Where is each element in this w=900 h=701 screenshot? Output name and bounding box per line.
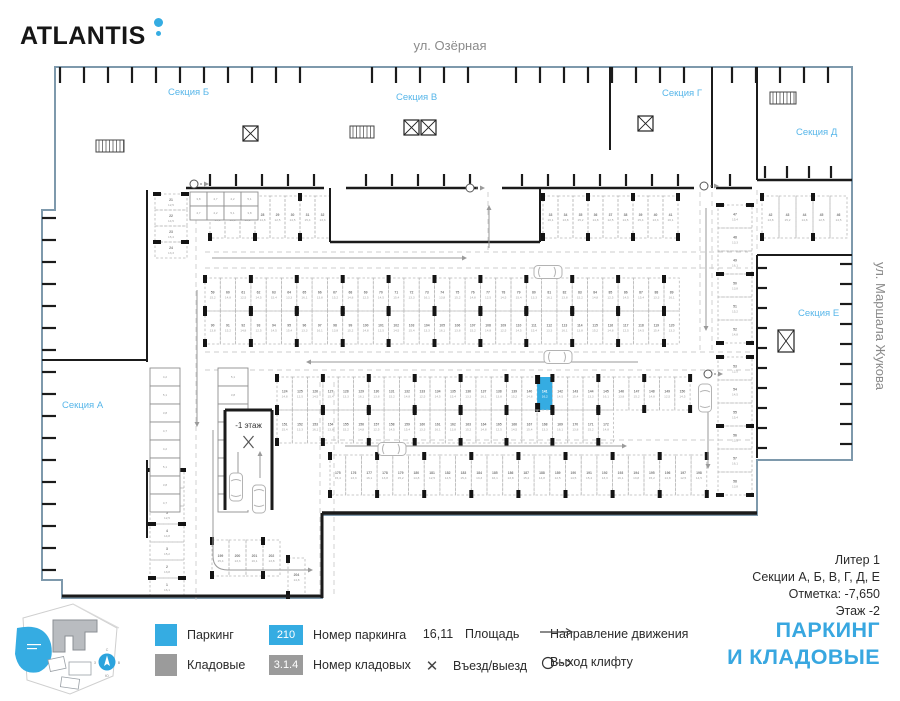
svg-text:3: 3 bbox=[166, 547, 168, 551]
svg-text:14,5: 14,5 bbox=[435, 395, 441, 399]
svg-text:13,8: 13,8 bbox=[732, 287, 738, 291]
site-minimap: СВЮЗ bbox=[15, 604, 121, 694]
parking-stall-selected[interactable]: 14116,2 bbox=[535, 375, 552, 412]
svg-text:34: 34 bbox=[564, 213, 568, 217]
svg-text:15,4: 15,4 bbox=[638, 296, 644, 300]
svg-text:64: 64 bbox=[287, 291, 291, 295]
svg-text:153: 153 bbox=[312, 423, 318, 427]
svg-text:15,2: 15,2 bbox=[225, 329, 231, 333]
svg-text:14,8: 14,8 bbox=[481, 428, 487, 432]
svg-text:61: 61 bbox=[241, 291, 245, 295]
svg-text:159: 159 bbox=[404, 423, 410, 427]
svg-text:109: 109 bbox=[501, 324, 507, 328]
svg-text:36: 36 bbox=[594, 213, 598, 217]
svg-text:111: 111 bbox=[531, 324, 536, 328]
svg-text:101: 101 bbox=[378, 324, 384, 328]
svg-text:15,2: 15,2 bbox=[470, 329, 476, 333]
street-label-right: ул. Маршала Жукова bbox=[873, 262, 888, 390]
svg-text:14,8: 14,8 bbox=[592, 218, 598, 222]
svg-text:4: 4 bbox=[166, 529, 168, 533]
svg-text:3,8: 3,8 bbox=[196, 197, 201, 201]
svg-text:166: 166 bbox=[511, 423, 517, 427]
svg-text:181: 181 bbox=[429, 471, 435, 475]
svg-text:169: 169 bbox=[557, 423, 563, 427]
svg-text:112: 112 bbox=[547, 324, 553, 328]
svg-text:170: 170 bbox=[573, 423, 579, 427]
svg-text:15,2: 15,2 bbox=[389, 395, 395, 399]
svg-text:15,2: 15,2 bbox=[164, 552, 170, 556]
svg-text:28: 28 bbox=[261, 213, 265, 217]
svg-text:127: 127 bbox=[328, 390, 334, 394]
svg-text:167: 167 bbox=[527, 423, 533, 427]
svg-text:46: 46 bbox=[837, 213, 841, 217]
svg-text:185: 185 bbox=[492, 471, 498, 475]
svg-text:182: 182 bbox=[445, 471, 451, 475]
svg-text:16,1: 16,1 bbox=[557, 428, 563, 432]
svg-text:14,8: 14,8 bbox=[282, 395, 288, 399]
svg-text:16,1: 16,1 bbox=[366, 476, 372, 480]
svg-text:161: 161 bbox=[435, 423, 441, 427]
svg-text:120: 120 bbox=[669, 324, 675, 328]
svg-text:14,5: 14,5 bbox=[732, 393, 738, 397]
svg-text:107: 107 bbox=[470, 324, 476, 328]
svg-text:15,4: 15,4 bbox=[732, 218, 738, 222]
svg-text:179: 179 bbox=[398, 471, 404, 475]
svg-text:15,4: 15,4 bbox=[286, 329, 292, 333]
storage-cell[interactable]: 4,7 bbox=[190, 206, 207, 220]
svg-text:16,2: 16,2 bbox=[542, 395, 548, 399]
svg-text:14,8: 14,8 bbox=[732, 333, 738, 337]
stairs-icon bbox=[350, 126, 374, 138]
section-label: Секция Е bbox=[798, 308, 839, 319]
section-label: Секция Б bbox=[168, 87, 209, 98]
svg-text:67: 67 bbox=[333, 291, 337, 295]
legend-item-entry: ✕ Въезд/выезд bbox=[421, 657, 527, 675]
svg-text:15,2: 15,2 bbox=[577, 296, 583, 300]
svg-text:12,5: 12,5 bbox=[607, 296, 613, 300]
svg-text:118: 118 bbox=[638, 324, 644, 328]
svg-text:43: 43 bbox=[786, 213, 790, 217]
svg-text:13,8: 13,8 bbox=[633, 476, 639, 480]
storage-cell[interactable]: 5,1 bbox=[218, 368, 248, 386]
svg-text:Ю: Ю bbox=[105, 674, 109, 678]
svg-text:13,3: 13,3 bbox=[732, 439, 738, 443]
storage-cell[interactable]: 4,7 bbox=[150, 494, 180, 512]
car-icon bbox=[378, 443, 406, 456]
svg-text:132: 132 bbox=[404, 390, 410, 394]
svg-text:16,1: 16,1 bbox=[312, 428, 318, 432]
svg-text:13,3: 13,3 bbox=[424, 329, 430, 333]
svg-text:96: 96 bbox=[303, 324, 307, 328]
svg-text:44: 44 bbox=[803, 213, 807, 217]
svg-text:201: 201 bbox=[252, 554, 258, 558]
storage-cell[interactable]: 5,1 bbox=[224, 206, 241, 220]
svg-text:13,3: 13,3 bbox=[419, 428, 425, 432]
legend-item-storage: Кладовые bbox=[155, 654, 245, 676]
svg-text:176: 176 bbox=[351, 471, 357, 475]
svg-text:148: 148 bbox=[649, 390, 655, 394]
svg-text:12,5: 12,5 bbox=[429, 476, 435, 480]
svg-text:16,1: 16,1 bbox=[481, 395, 487, 399]
svg-text:13,3: 13,3 bbox=[588, 395, 594, 399]
svg-text:38: 38 bbox=[624, 213, 628, 217]
svg-text:16,1: 16,1 bbox=[667, 218, 673, 222]
svg-text:15,4: 15,4 bbox=[271, 296, 277, 300]
storage-label: Кладовые bbox=[187, 658, 245, 672]
elevator-shaft-icon bbox=[421, 120, 436, 135]
svg-text:75: 75 bbox=[456, 291, 460, 295]
storage-cell[interactable]: 3,8 bbox=[150, 404, 180, 422]
svg-text:5,1: 5,1 bbox=[163, 393, 168, 397]
section-label: Секция В bbox=[396, 92, 437, 103]
storage-cell[interactable]: 3,8 bbox=[241, 206, 258, 220]
svg-text:204: 204 bbox=[294, 573, 300, 577]
svg-text:12,5: 12,5 bbox=[732, 370, 738, 374]
svg-text:14,8: 14,8 bbox=[603, 428, 609, 432]
svg-text:4,2: 4,2 bbox=[213, 211, 218, 215]
storage-cell[interactable]: 5,1 bbox=[241, 192, 258, 206]
svg-text:3,8: 3,8 bbox=[163, 483, 168, 487]
storage-cell[interactable]: 3,8 bbox=[190, 192, 207, 206]
svg-text:152: 152 bbox=[297, 423, 303, 427]
svg-text:160: 160 bbox=[420, 423, 426, 427]
svg-text:106: 106 bbox=[455, 324, 461, 328]
svg-text:13,3: 13,3 bbox=[286, 296, 292, 300]
svg-text:22: 22 bbox=[169, 214, 173, 218]
svg-text:188: 188 bbox=[539, 471, 545, 475]
svg-text:15,4: 15,4 bbox=[335, 476, 341, 480]
svg-text:53: 53 bbox=[733, 365, 737, 369]
svg-text:190: 190 bbox=[571, 471, 577, 475]
svg-text:136: 136 bbox=[465, 390, 471, 394]
svg-text:150: 150 bbox=[680, 390, 686, 394]
svg-text:13,8: 13,8 bbox=[382, 476, 388, 480]
svg-text:145: 145 bbox=[603, 390, 609, 394]
svg-text:47: 47 bbox=[733, 213, 737, 217]
svg-text:16,1: 16,1 bbox=[603, 395, 609, 399]
svg-text:62: 62 bbox=[257, 291, 261, 295]
storage-cell[interactable]: 4,2 bbox=[207, 206, 224, 220]
svg-text:98: 98 bbox=[333, 324, 337, 328]
elevator-shaft-icon bbox=[778, 330, 794, 352]
svg-text:14,5: 14,5 bbox=[696, 476, 702, 480]
svg-text:12,5: 12,5 bbox=[623, 329, 629, 333]
elevator-shaft-icon bbox=[404, 120, 419, 135]
svg-text:14,5: 14,5 bbox=[393, 329, 399, 333]
svg-text:-1 этаж: -1 этаж bbox=[235, 421, 262, 430]
svg-text:14,5: 14,5 bbox=[679, 395, 685, 399]
svg-text:4,7: 4,7 bbox=[213, 197, 218, 201]
svg-text:158: 158 bbox=[389, 423, 395, 427]
parking-label: Паркинг bbox=[187, 628, 234, 642]
svg-text:4,7: 4,7 bbox=[163, 501, 168, 505]
svg-text:70: 70 bbox=[379, 291, 383, 295]
svg-text:3,8: 3,8 bbox=[247, 211, 252, 215]
svg-text:15,4: 15,4 bbox=[572, 395, 578, 399]
svg-text:155: 155 bbox=[343, 423, 349, 427]
svg-text:29: 29 bbox=[276, 213, 280, 217]
svg-text:15,2: 15,2 bbox=[343, 428, 349, 432]
svg-text:13,3: 13,3 bbox=[465, 395, 471, 399]
svg-text:51: 51 bbox=[733, 305, 737, 309]
svg-text:14,5: 14,5 bbox=[312, 395, 318, 399]
svg-text:15,2: 15,2 bbox=[732, 310, 738, 314]
svg-text:15,2: 15,2 bbox=[347, 329, 353, 333]
svg-text:151: 151 bbox=[282, 423, 288, 427]
svg-text:13,3: 13,3 bbox=[542, 428, 548, 432]
svg-text:15,4: 15,4 bbox=[526, 428, 532, 432]
svg-text:14,5: 14,5 bbox=[378, 296, 384, 300]
svg-text:12,5: 12,5 bbox=[168, 203, 174, 207]
svg-text:119: 119 bbox=[654, 324, 660, 328]
svg-text:14,5: 14,5 bbox=[516, 329, 522, 333]
svg-text:131: 131 bbox=[389, 390, 395, 394]
svg-text:168: 168 bbox=[542, 423, 548, 427]
svg-text:15,4: 15,4 bbox=[282, 428, 288, 432]
svg-text:5,1: 5,1 bbox=[247, 197, 252, 201]
svg-text:15,4: 15,4 bbox=[732, 416, 738, 420]
svg-text:81: 81 bbox=[547, 291, 551, 295]
svg-text:196: 196 bbox=[665, 471, 671, 475]
svg-text:93: 93 bbox=[257, 324, 261, 328]
svg-text:105: 105 bbox=[439, 324, 445, 328]
svg-text:13,3: 13,3 bbox=[301, 329, 307, 333]
svg-text:13,8: 13,8 bbox=[328, 428, 334, 432]
svg-text:15,4: 15,4 bbox=[653, 329, 659, 333]
svg-text:16,1: 16,1 bbox=[547, 218, 553, 222]
storage-cell[interactable]: 4,7 bbox=[207, 192, 224, 206]
svg-text:15,4: 15,4 bbox=[404, 428, 410, 432]
svg-text:13,3: 13,3 bbox=[602, 476, 608, 480]
svg-text:16,1: 16,1 bbox=[546, 296, 552, 300]
svg-text:86: 86 bbox=[624, 291, 628, 295]
section-label: Секция А bbox=[62, 400, 104, 411]
svg-text:65: 65 bbox=[303, 291, 307, 295]
svg-text:94: 94 bbox=[272, 324, 276, 328]
legend-item-area: 16,11 Площадь bbox=[421, 627, 519, 641]
svg-text:100: 100 bbox=[363, 324, 369, 328]
svg-text:191: 191 bbox=[586, 471, 592, 475]
svg-text:5,1: 5,1 bbox=[231, 375, 236, 379]
svg-text:15,4: 15,4 bbox=[168, 235, 174, 239]
svg-text:195: 195 bbox=[649, 471, 655, 475]
svg-text:3,8: 3,8 bbox=[163, 411, 168, 415]
svg-text:16,1: 16,1 bbox=[251, 559, 257, 563]
storage-cell[interactable]: 4,2 bbox=[224, 192, 241, 206]
legend-item-parking: Паркинг bbox=[155, 624, 234, 646]
svg-text:16,1: 16,1 bbox=[301, 296, 307, 300]
svg-text:16,1: 16,1 bbox=[492, 476, 498, 480]
svg-text:12,5: 12,5 bbox=[555, 476, 561, 480]
svg-text:147: 147 bbox=[634, 390, 640, 394]
brand-dot-large-icon bbox=[154, 18, 163, 27]
svg-text:15,4: 15,4 bbox=[304, 218, 310, 222]
svg-text:13,8: 13,8 bbox=[439, 296, 445, 300]
svg-text:183: 183 bbox=[461, 471, 467, 475]
svg-text:В: В bbox=[118, 661, 121, 665]
svg-text:14,8: 14,8 bbox=[485, 329, 491, 333]
storage-number-swatch-icon: 3.1.4 bbox=[269, 655, 303, 675]
area-label: Площадь bbox=[465, 627, 519, 641]
svg-text:14,5: 14,5 bbox=[835, 218, 841, 222]
svg-text:49: 49 bbox=[733, 259, 737, 263]
svg-text:15,4: 15,4 bbox=[586, 476, 592, 480]
section-label: Секция Г bbox=[662, 88, 702, 99]
svg-text:50: 50 bbox=[733, 282, 737, 286]
svg-text:16,1: 16,1 bbox=[617, 476, 623, 480]
svg-text:13,8: 13,8 bbox=[577, 329, 583, 333]
svg-text:12,5: 12,5 bbox=[164, 516, 170, 520]
storage-cell[interactable]: 4,7 bbox=[150, 422, 180, 440]
svg-text:15,4: 15,4 bbox=[460, 476, 466, 480]
svg-text:16,1: 16,1 bbox=[435, 428, 441, 432]
svg-text:13,8: 13,8 bbox=[618, 395, 624, 399]
svg-text:15,2: 15,2 bbox=[511, 395, 517, 399]
svg-text:12,5: 12,5 bbox=[419, 395, 425, 399]
svg-text:5,1: 5,1 bbox=[230, 211, 235, 215]
svg-text:177: 177 bbox=[366, 471, 372, 475]
parking-number-swatch-icon: 210 bbox=[269, 625, 303, 645]
svg-text:13,3: 13,3 bbox=[343, 395, 349, 399]
storage-cell[interactable]: 3,8 bbox=[218, 386, 248, 404]
elevator-shaft-icon bbox=[243, 126, 258, 141]
svg-text:66: 66 bbox=[318, 291, 322, 295]
svg-text:134: 134 bbox=[435, 390, 441, 394]
svg-text:104: 104 bbox=[424, 324, 430, 328]
storage-cell[interactable]: 3,8 bbox=[150, 476, 180, 494]
svg-text:192: 192 bbox=[602, 471, 608, 475]
svg-text:15,2: 15,2 bbox=[523, 476, 529, 480]
svg-text:200: 200 bbox=[235, 554, 241, 558]
svg-text:110: 110 bbox=[516, 324, 522, 328]
svg-text:15,4: 15,4 bbox=[217, 559, 223, 563]
svg-text:91: 91 bbox=[226, 324, 230, 328]
car-icon bbox=[544, 351, 572, 364]
legend-item-direction: Направление движения bbox=[540, 627, 688, 641]
storage-cell[interactable]: 4,2 bbox=[150, 440, 180, 458]
elevator-shaft-icon bbox=[638, 116, 653, 131]
svg-text:141: 141 bbox=[542, 390, 548, 394]
svg-text:197: 197 bbox=[680, 471, 686, 475]
svg-text:13,8: 13,8 bbox=[268, 559, 274, 563]
svg-text:15,2: 15,2 bbox=[332, 296, 338, 300]
svg-text:58: 58 bbox=[733, 480, 737, 484]
svg-text:97: 97 bbox=[318, 324, 322, 328]
svg-text:137: 137 bbox=[481, 390, 487, 394]
svg-text:13,8: 13,8 bbox=[210, 329, 216, 333]
svg-text:13,8: 13,8 bbox=[508, 476, 514, 480]
svg-text:198: 198 bbox=[696, 471, 702, 475]
svg-text:1: 1 bbox=[166, 583, 168, 587]
svg-text:146: 146 bbox=[618, 390, 624, 394]
legend: Паркинг Кладовые 210 Номер паркинга 3.1.… bbox=[155, 618, 715, 682]
svg-text:95: 95 bbox=[287, 324, 291, 328]
svg-text:80: 80 bbox=[532, 291, 536, 295]
svg-text:157: 157 bbox=[374, 423, 380, 427]
svg-text:13,8: 13,8 bbox=[562, 296, 568, 300]
svg-text:14,5: 14,5 bbox=[570, 476, 576, 480]
svg-text:15,2: 15,2 bbox=[649, 476, 655, 480]
page-title: ПАРКИНГ И КЛАДОВЫЕ bbox=[727, 617, 880, 671]
svg-text:13,3: 13,3 bbox=[732, 241, 738, 245]
svg-text:129: 129 bbox=[358, 390, 364, 394]
svg-text:68: 68 bbox=[348, 291, 352, 295]
car-icon bbox=[230, 473, 243, 501]
svg-text:С: С bbox=[106, 648, 109, 652]
svg-text:16,1: 16,1 bbox=[732, 264, 738, 268]
svg-text:12,5: 12,5 bbox=[256, 329, 262, 333]
svg-text:149: 149 bbox=[664, 390, 670, 394]
svg-text:102: 102 bbox=[393, 324, 399, 328]
svg-text:15,4: 15,4 bbox=[516, 296, 522, 300]
svg-text:12,5: 12,5 bbox=[664, 395, 670, 399]
svg-text:13,8: 13,8 bbox=[454, 329, 460, 333]
storage-cell[interactable]: 5,1 bbox=[150, 458, 180, 476]
svg-text:76: 76 bbox=[471, 291, 475, 295]
svg-text:41: 41 bbox=[669, 213, 673, 217]
svg-text:14,5: 14,5 bbox=[622, 218, 628, 222]
svg-text:14,5: 14,5 bbox=[256, 296, 262, 300]
storage-cell[interactable]: 4,2 bbox=[150, 368, 180, 386]
svg-text:15,2: 15,2 bbox=[465, 428, 471, 432]
svg-text:108: 108 bbox=[485, 324, 491, 328]
legend-item-storage-number: 3.1.4 Номер кладовых bbox=[269, 655, 411, 675]
page: 2112,52214,52315,42413,32516,12613,82715… bbox=[0, 0, 900, 701]
svg-text:13,3: 13,3 bbox=[409, 296, 415, 300]
svg-text:63: 63 bbox=[272, 291, 276, 295]
svg-text:172: 172 bbox=[603, 423, 609, 427]
svg-text:88: 88 bbox=[654, 291, 658, 295]
svg-text:138: 138 bbox=[496, 390, 502, 394]
svg-text:125: 125 bbox=[297, 390, 303, 394]
svg-text:12,5: 12,5 bbox=[680, 476, 686, 480]
svg-text:15,4: 15,4 bbox=[409, 329, 415, 333]
svg-text:12,5: 12,5 bbox=[496, 428, 502, 432]
svg-text:14,8: 14,8 bbox=[225, 296, 231, 300]
svg-text:13,3: 13,3 bbox=[653, 296, 659, 300]
svg-text:15,2: 15,2 bbox=[588, 428, 594, 432]
storage-cell[interactable]: 5,1 bbox=[150, 386, 180, 404]
svg-text:30: 30 bbox=[291, 213, 295, 217]
svg-text:199: 199 bbox=[218, 554, 224, 558]
svg-text:39: 39 bbox=[639, 213, 643, 217]
svg-text:14,8: 14,8 bbox=[539, 476, 545, 480]
svg-text:180: 180 bbox=[414, 471, 420, 475]
svg-text:12,5: 12,5 bbox=[500, 329, 506, 333]
svg-text:163: 163 bbox=[465, 423, 471, 427]
svg-text:116: 116 bbox=[608, 324, 614, 328]
svg-text:13,8: 13,8 bbox=[373, 395, 379, 399]
svg-text:85: 85 bbox=[609, 291, 613, 295]
svg-text:15,4: 15,4 bbox=[531, 329, 537, 333]
svg-text:154: 154 bbox=[328, 423, 334, 427]
svg-text:165: 165 bbox=[496, 423, 502, 427]
svg-text:2: 2 bbox=[166, 565, 168, 569]
svg-text:194: 194 bbox=[633, 471, 639, 475]
svg-text:140: 140 bbox=[527, 390, 533, 394]
svg-text:57: 57 bbox=[733, 457, 737, 461]
title-line2: И КЛАДОВЫЕ bbox=[727, 644, 880, 671]
svg-text:14,8: 14,8 bbox=[526, 395, 532, 399]
svg-text:77: 77 bbox=[486, 291, 490, 295]
svg-text:69: 69 bbox=[364, 291, 368, 295]
stairs-icon bbox=[96, 140, 124, 152]
svg-text:14,8: 14,8 bbox=[607, 329, 613, 333]
svg-text:23: 23 bbox=[169, 230, 173, 234]
svg-text:15,4: 15,4 bbox=[450, 395, 456, 399]
svg-text:124: 124 bbox=[282, 390, 288, 394]
svg-text:142: 142 bbox=[557, 390, 563, 394]
